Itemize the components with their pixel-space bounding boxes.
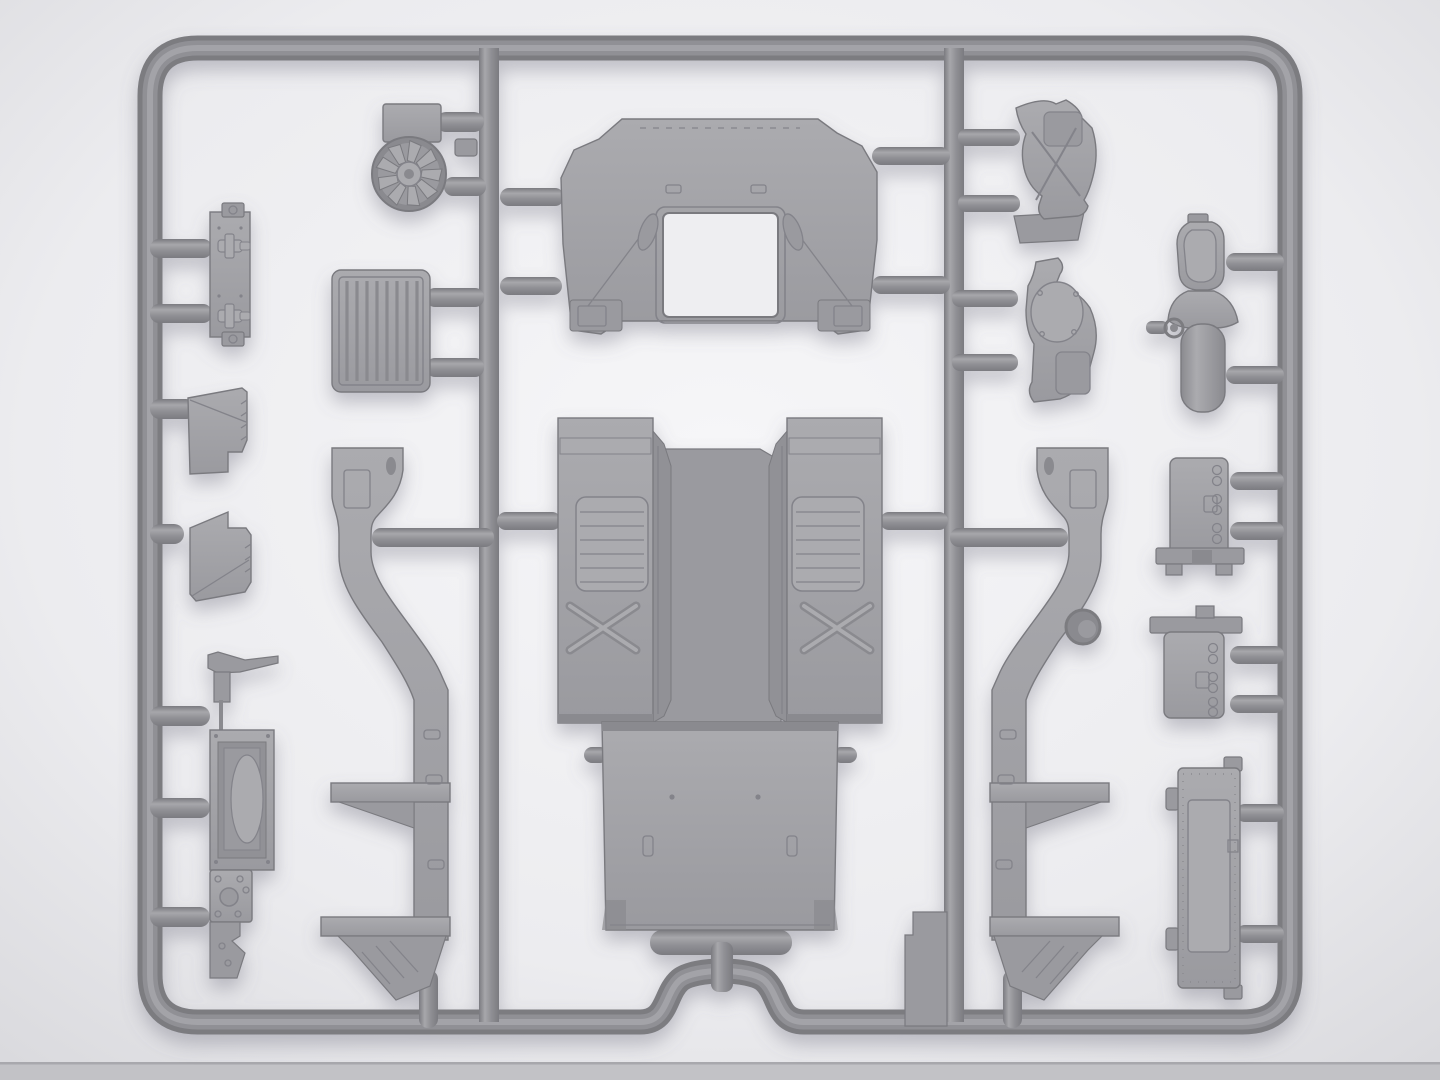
t-runner-stem: [711, 942, 733, 992]
core-inset: [1188, 800, 1230, 952]
cargo-floor-panel: [602, 722, 838, 930]
sprue-photo: [0, 0, 1440, 1080]
lower-bracket: [210, 922, 245, 978]
hood-window-opening: [663, 213, 778, 317]
fender-step-left: [558, 418, 671, 723]
radiator-core-oval: [231, 755, 263, 843]
molding-tab: [455, 139, 477, 156]
table-edge-strip: [0, 1062, 1440, 1080]
tread-plate: [576, 497, 648, 591]
radiator-grille: [332, 270, 430, 392]
sprue-render: [0, 0, 1440, 1080]
side-clamp-bracket: [210, 203, 250, 346]
radiator-core-panel: [1166, 757, 1242, 999]
fender-step-right: [769, 418, 882, 723]
table-edge-line: [0, 1062, 1440, 1065]
block-top-flange: [1150, 617, 1242, 633]
hood-panel: [561, 119, 877, 334]
rail-flange-lower: [321, 917, 450, 936]
rail-flange-upper: [331, 783, 450, 802]
cooling-fan: [372, 104, 446, 211]
rail-right-boss: [1066, 610, 1100, 644]
filter-canister: [1181, 324, 1225, 412]
